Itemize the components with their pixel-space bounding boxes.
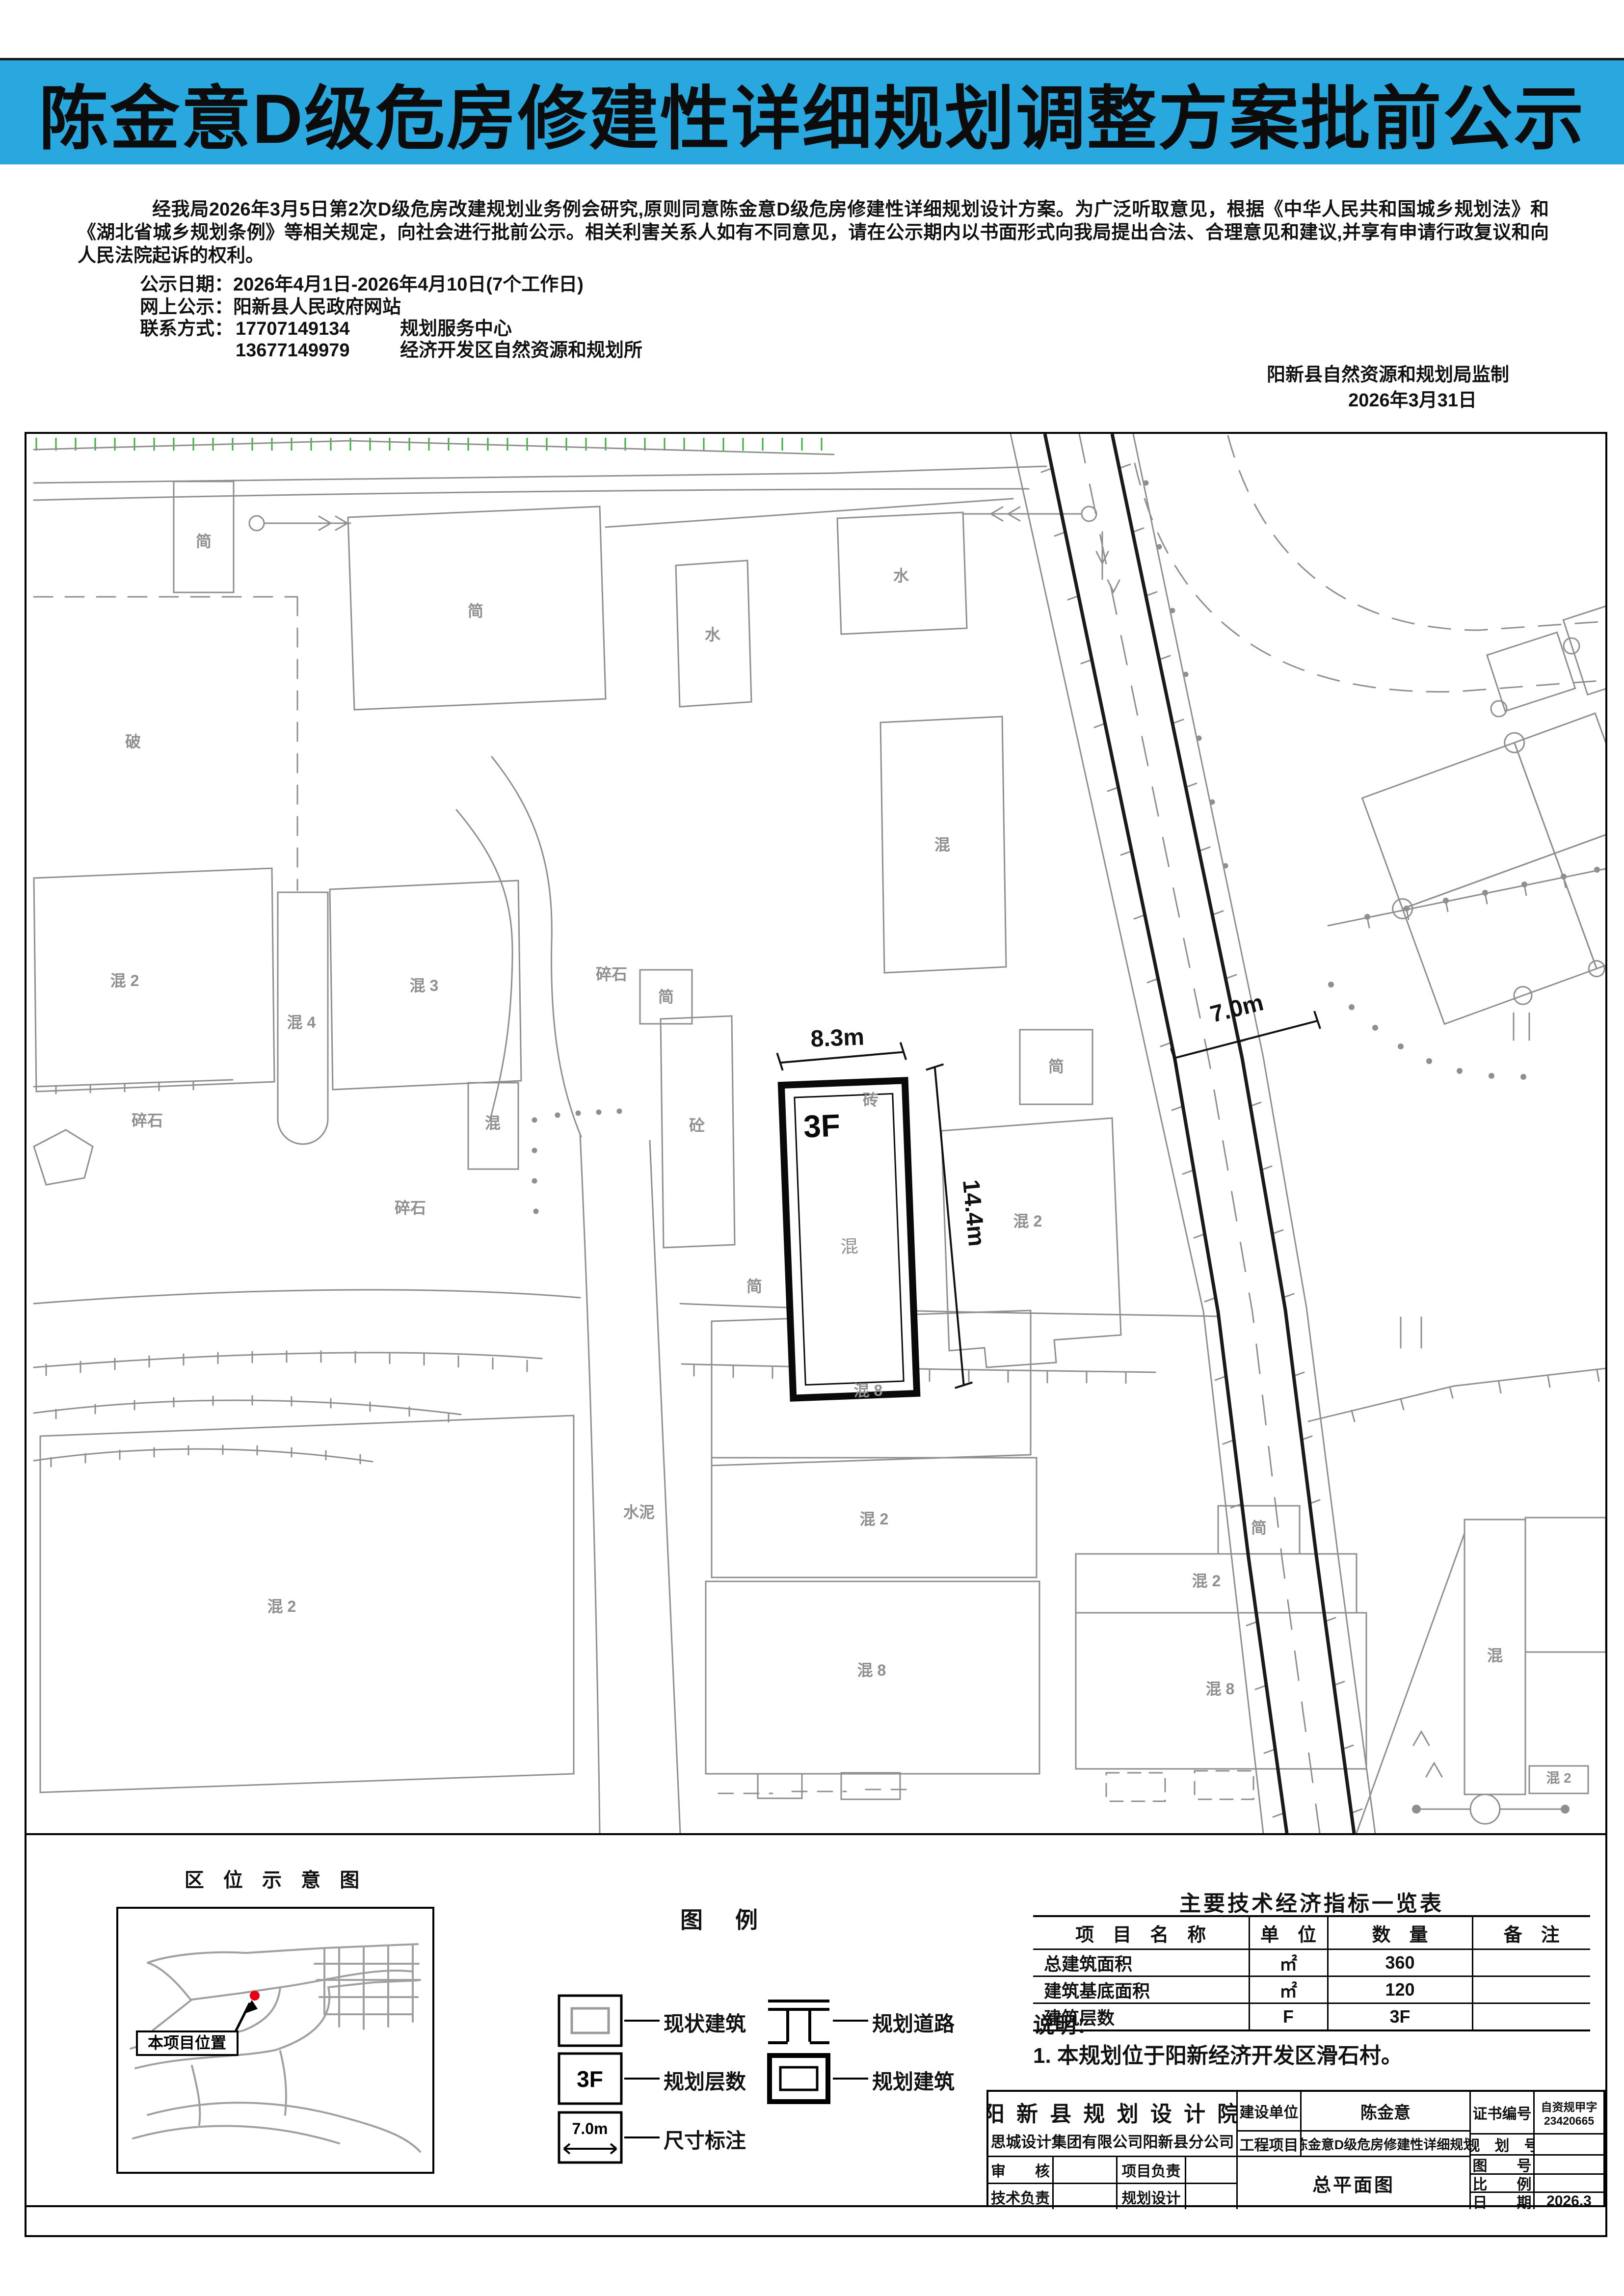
map-panel-separator [27, 1833, 1605, 1835]
svg-text:混 8: 混 8 [1206, 1680, 1235, 1698]
project-lead-label: 项目负责 [1116, 2156, 1185, 2183]
svg-text:混 8: 混 8 [854, 1382, 883, 1399]
web-publish-line: 网上公示：阳新县人民政府网站 [140, 292, 401, 314]
legend-dimension-label: 尺寸标注 [664, 2124, 746, 2154]
table-header-row: 项 目 名 称 单 位 数 量 备 注 [1033, 1916, 1590, 1949]
width-dimension-label: 8.3m [810, 1024, 865, 1052]
project-lead-value [1185, 2156, 1236, 2183]
svg-text:3F: 3F [577, 2066, 603, 2092]
issuer: 阳新县自然资源和规划局监制 [1267, 359, 1509, 386]
legend-planned-building-label: 规划建筑 [872, 2065, 955, 2095]
svg-text:混 3: 混 3 [410, 977, 439, 994]
location-map-title: 区 位 示 意 图 [116, 1864, 434, 1893]
legend-title: 图 例 [643, 1902, 800, 1935]
svg-text:碎石: 碎石 [395, 1199, 426, 1217]
road-width-label: 7.0m [1208, 989, 1266, 1028]
date-value: 2026.3 [1533, 2191, 1603, 2209]
legend-planned-building-icon [766, 2052, 832, 2106]
client-value: 陈金意 [1300, 2092, 1469, 2130]
contact-line-1: 联系方式：17707149134规划服务中心 [140, 313, 512, 336]
svg-text:混: 混 [485, 1114, 501, 1132]
design-institute: 阳 新 县 规 划 设 计 院 [988, 2096, 1236, 2128]
plan-no-value [1533, 2133, 1603, 2154]
notes: 说明： 1. 本规划位于阳新经济开发区滑石村。 [1033, 2010, 1403, 2071]
plan-no-label: 规 划 号 [1469, 2133, 1533, 2154]
svg-text:水: 水 [705, 626, 721, 643]
project-location-label: 本项目位置 [148, 2034, 226, 2052]
svg-text:砼: 砼 [689, 1117, 705, 1134]
vegetation-ticks [36, 438, 822, 451]
intro-paragraph: 经我局2026年3月5日第2次D级危房改建规划业务例会研究,原则同意陈金意D级危… [78, 198, 1549, 267]
svg-text:简: 简 [1048, 1058, 1064, 1075]
legend-planned-road-icon [766, 1994, 832, 2048]
svg-text:混 2: 混 2 [267, 1598, 296, 1615]
design-company: 思城设计集团有限公司阳新县分公司 [991, 2130, 1234, 2152]
title-banner: 陈金意D级危房修建性详细规划调整方案批前公示 [0, 58, 1624, 164]
svg-text:混 4: 混 4 [287, 1014, 316, 1031]
phone-2: 13677149979 [236, 340, 400, 361]
svg-text:简: 简 [658, 988, 674, 1006]
svg-text:简: 简 [746, 1278, 762, 1295]
svg-text:7.0m: 7.0m [572, 2120, 608, 2137]
svg-text:简: 简 [196, 533, 212, 550]
svg-text:破: 破 [125, 733, 141, 750]
project-label: 工程项目 [1236, 2130, 1300, 2156]
svg-text:水泥: 水泥 [623, 1503, 655, 1521]
scale-value [1533, 2173, 1603, 2191]
svg-text:混 8: 混 8 [857, 1661, 886, 1679]
title-block: 阳 新 县 规 划 设 计 院 思城设计集团有限公司阳新县分公司 审 核 项目负… [986, 2090, 1605, 2207]
notice-page: 陈金意D级危房修建性详细规划调整方案批前公示 经我局2026年3月5日第2次D级… [0, 0, 1624, 2296]
date-label: 日 期 [1469, 2191, 1533, 2209]
planned-building: 3F 混 8.3m 14.4m [776, 1019, 995, 1398]
svg-text:碎石: 碎石 [132, 1112, 163, 1129]
svg-text:简: 简 [468, 602, 483, 620]
table-row: 建筑基底面积㎡120 [1033, 1976, 1590, 2003]
legend-planned-floors-icon: 3F [557, 2052, 623, 2106]
svg-text:水: 水 [893, 567, 909, 585]
svg-text:砖: 砖 [863, 1091, 879, 1109]
review-label: 审 核 [988, 2156, 1052, 2183]
drawing-title: 总平面图 [1236, 2156, 1469, 2209]
dept-2: 经济开发区自然资源和规划所 [400, 340, 642, 361]
notes-line-1: 1. 本规划位于阳新经济开发区滑石村。 [1033, 2041, 1403, 2071]
planned-road [1045, 434, 1354, 1833]
cert-label: 证书编号 [1469, 2092, 1533, 2133]
fig-no-label: 图 号 [1469, 2154, 1533, 2173]
svg-text:混: 混 [934, 836, 950, 854]
legend-dimension-icon: 7.0m [557, 2110, 623, 2164]
legend-planned-road-label: 规划道路 [872, 2007, 955, 2037]
tech-lead-value [1052, 2183, 1116, 2209]
svg-text:简: 简 [1251, 1519, 1267, 1537]
client-label: 建设单位 [1236, 2092, 1300, 2130]
location-map: 本项目位置 [116, 1907, 434, 2174]
svg-text:混 2: 混 2 [1546, 1770, 1571, 1786]
plan-design-value [1185, 2183, 1236, 2209]
tech-lead-label: 技术负责 [988, 2183, 1052, 2209]
fig-no-value [1533, 2154, 1603, 2173]
indicator-table-title: 主要技术经济指标一览表 [1033, 1886, 1590, 1917]
dot-markers [532, 481, 1600, 1814]
svg-text:混: 混 [1487, 1647, 1503, 1664]
project-location-dot [250, 1991, 260, 2001]
project-value: 陈金意D级危房修建性详细规划 [1300, 2130, 1469, 2156]
publish-date-line: 公示日期：2026年4月1日-2026年4月10日(7个工作日) [140, 269, 584, 292]
legend-existing-building-icon [557, 1994, 623, 2048]
svg-text:混 2: 混 2 [860, 1510, 889, 1528]
svg-text:混 2: 混 2 [110, 972, 139, 989]
notes-heading: 说明： [1033, 2010, 1403, 2041]
planned-floors-label: 3F [803, 1108, 841, 1145]
svg-text:碎石: 碎石 [596, 965, 627, 983]
table-row: 总建筑面积㎡360 [1033, 1949, 1590, 1976]
scale-label: 比 例 [1469, 2173, 1533, 2191]
cert-value-2: 23420665 [1544, 2114, 1594, 2128]
site-plan-map: 7.0m 3F 混 8.3m 14.4m 简 简 水 水 破 混 2 混 4 混… [27, 434, 1605, 1833]
page-title: 陈金意D级危房修建性详细规划调整方案批前公示 [39, 62, 1585, 163]
issue-date: 2026年3月31日 [1348, 385, 1477, 412]
plan-design-label: 规划设计 [1116, 2183, 1185, 2209]
legend-planned-floors-label: 规划层数 [664, 2065, 746, 2095]
svg-text:混 2: 混 2 [1013, 1212, 1042, 1230]
planned-material-label: 混 [840, 1236, 859, 1256]
contact-line-2: 13677149979经济开发区自然资源和规划所 [140, 335, 642, 357]
cert-value-1: 自资规甲字 [1541, 2098, 1597, 2114]
svg-text:混 2: 混 2 [1192, 1572, 1221, 1590]
legend-existing-building-label: 现状建筑 [664, 2007, 746, 2037]
review-value [1052, 2156, 1116, 2183]
height-dimension-label: 14.4m [958, 1178, 989, 1247]
